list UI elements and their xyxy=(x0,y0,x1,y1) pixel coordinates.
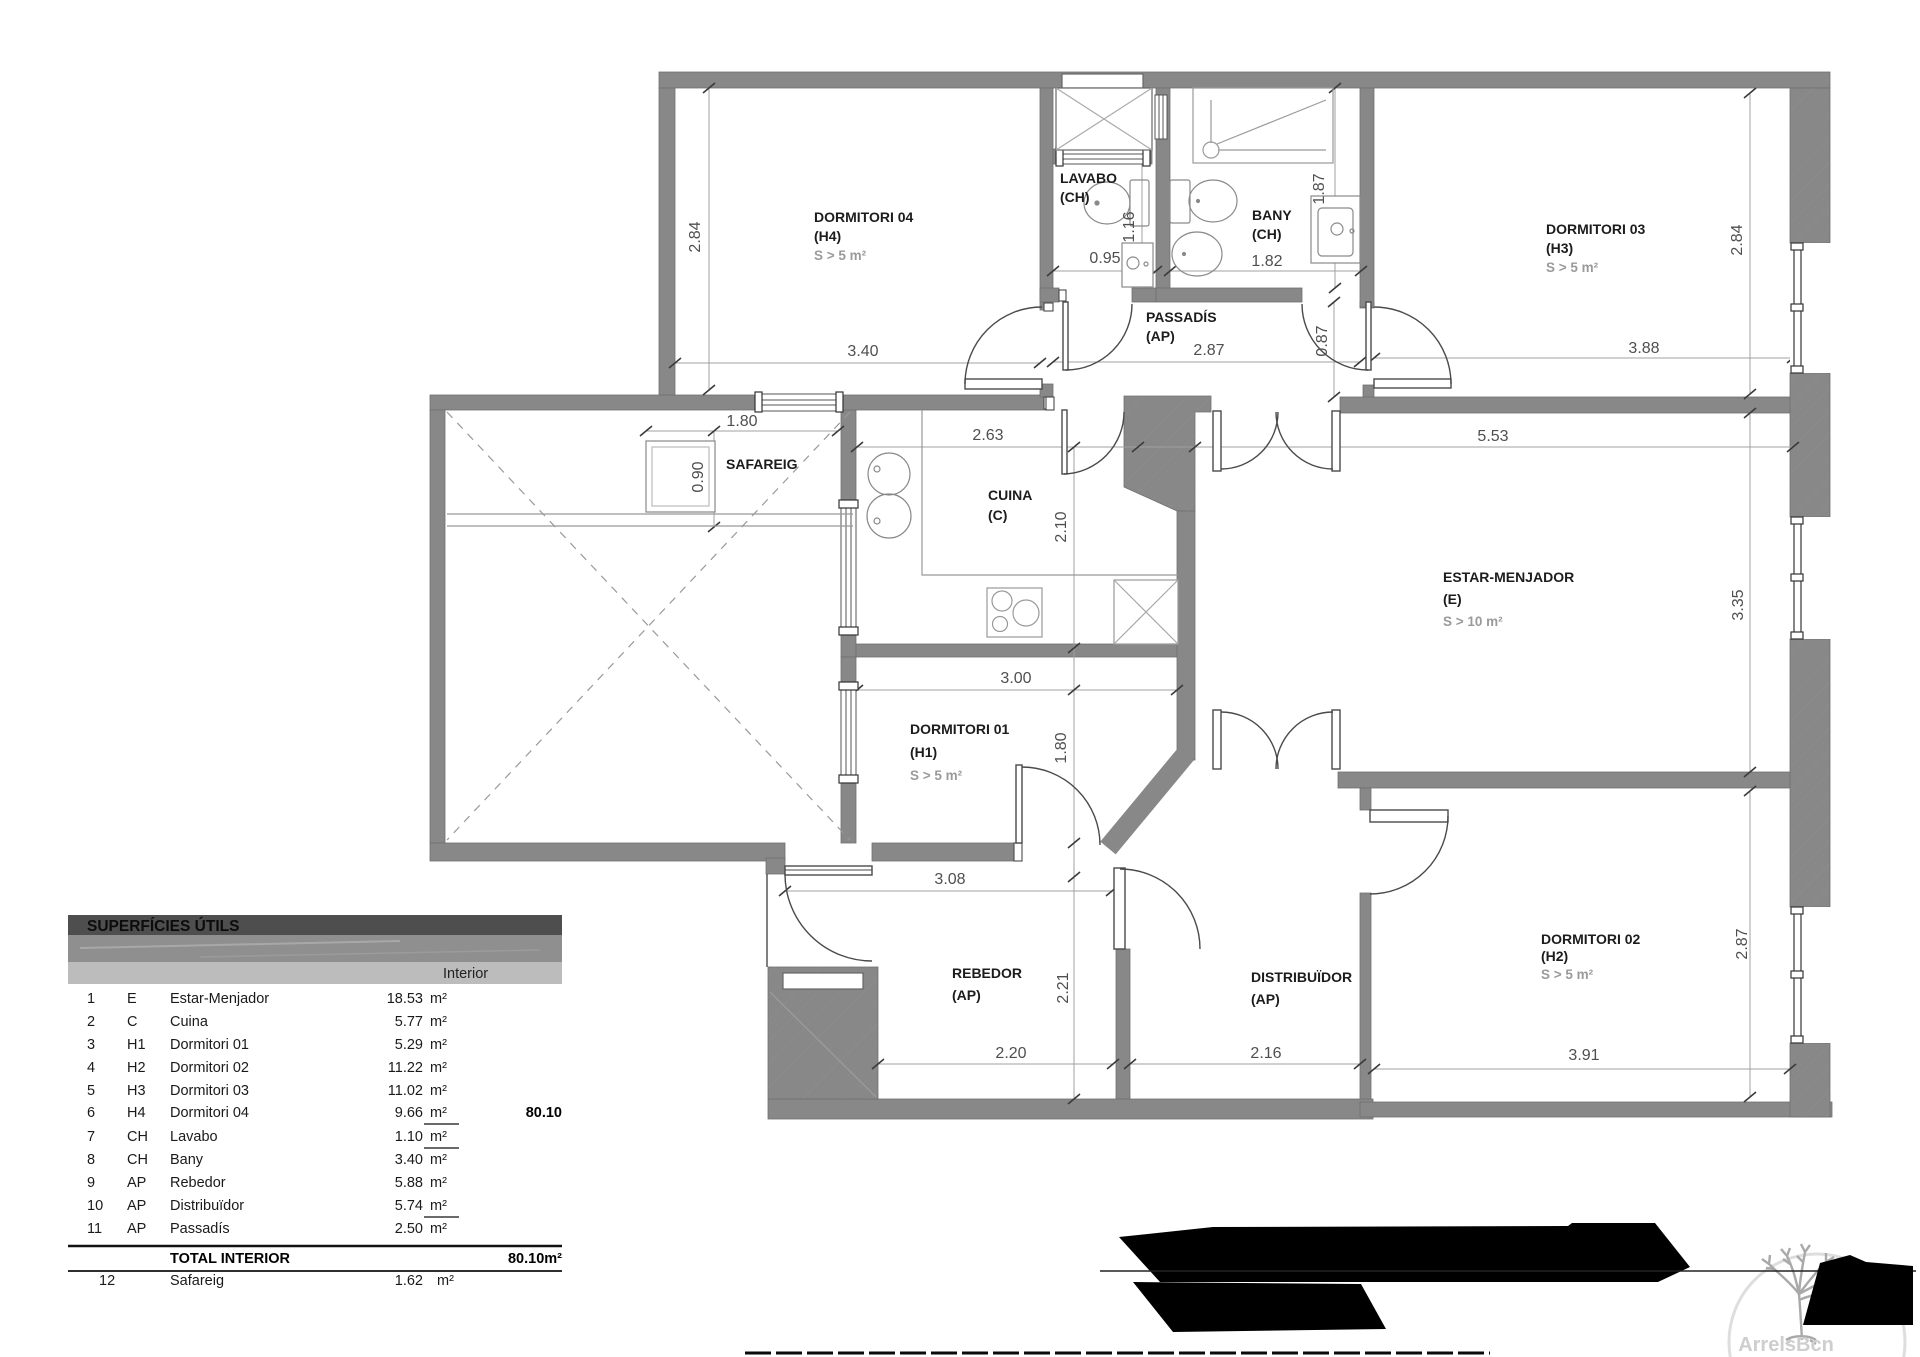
svg-text:Bany: Bany xyxy=(170,1152,204,1168)
svg-text:H2: H2 xyxy=(127,1060,146,1076)
svg-text:0.95: 0.95 xyxy=(1089,250,1120,267)
svg-text:1.87: 1.87 xyxy=(1311,173,1328,204)
svg-text:5.29: 5.29 xyxy=(395,1037,423,1053)
svg-text:(H4): (H4) xyxy=(814,228,841,244)
svg-text:Distribuïdor: Distribuïdor xyxy=(170,1198,244,1214)
svg-text:E: E xyxy=(127,991,137,1007)
svg-text:AP: AP xyxy=(127,1221,146,1237)
svg-text:9.66: 9.66 xyxy=(395,1105,423,1121)
svg-text:1: 1 xyxy=(87,991,95,1007)
svg-text:Dormitori 02: Dormitori 02 xyxy=(170,1060,249,1076)
svg-text:Passadís: Passadís xyxy=(170,1221,230,1237)
svg-text:DISTRIBUÏDOR: DISTRIBUÏDOR xyxy=(1251,969,1352,985)
svg-text:3.08: 3.08 xyxy=(934,871,965,888)
svg-text:(H1): (H1) xyxy=(910,744,937,760)
svg-text:3.35: 3.35 xyxy=(1730,589,1747,620)
svg-text:m²: m² xyxy=(430,1152,447,1168)
svg-text:11.22: 11.22 xyxy=(388,1060,423,1076)
svg-text:SUPERFÍCIES ÚTILS: SUPERFÍCIES ÚTILS xyxy=(87,917,239,935)
svg-text:m²: m² xyxy=(430,1175,447,1191)
svg-text:REBEDOR: REBEDOR xyxy=(952,965,1022,981)
svg-text:ArrelsBcn: ArrelsBcn xyxy=(1738,1334,1834,1356)
svg-text:5.88: 5.88 xyxy=(395,1175,423,1191)
svg-text:(AP): (AP) xyxy=(1251,991,1280,1007)
svg-text:2.21: 2.21 xyxy=(1055,972,1072,1003)
svg-text:H4: H4 xyxy=(127,1105,146,1121)
svg-text:Estar-Menjador: Estar-Menjador xyxy=(170,991,269,1007)
svg-text:BANY: BANY xyxy=(1252,207,1292,223)
svg-text:2.10: 2.10 xyxy=(1053,511,1070,542)
svg-text:m²: m² xyxy=(430,991,447,1007)
svg-text:1.62: 1.62 xyxy=(395,1273,423,1289)
svg-text:H1: H1 xyxy=(127,1037,146,1053)
svg-text:6: 6 xyxy=(87,1105,95,1121)
svg-text:SAFAREIG: SAFAREIG xyxy=(726,456,798,472)
svg-text:12: 12 xyxy=(99,1273,115,1289)
svg-text:Cuina: Cuina xyxy=(170,1014,209,1030)
svg-text:Interior: Interior xyxy=(443,966,488,982)
svg-text:(AP): (AP) xyxy=(952,987,981,1003)
svg-text:0.87: 0.87 xyxy=(1314,325,1331,356)
svg-text:Dormitori 01: Dormitori 01 xyxy=(170,1037,249,1053)
svg-text:4: 4 xyxy=(87,1060,95,1076)
svg-text:2.63: 2.63 xyxy=(972,427,1003,444)
svg-text:2.50: 2.50 xyxy=(395,1221,423,1237)
svg-text:m²: m² xyxy=(430,1129,447,1145)
svg-text:m²: m² xyxy=(430,1083,447,1099)
svg-text:80.10m²: 80.10m² xyxy=(508,1251,562,1267)
svg-text:3: 3 xyxy=(87,1037,95,1053)
svg-text:1.80: 1.80 xyxy=(1053,732,1070,763)
svg-text:1.82: 1.82 xyxy=(1251,253,1282,270)
svg-text:2.87: 2.87 xyxy=(1193,342,1224,359)
svg-text:(H3): (H3) xyxy=(1546,240,1573,256)
svg-text:Dormitori 04: Dormitori 04 xyxy=(170,1105,249,1121)
svg-text:3.00: 3.00 xyxy=(1000,670,1031,687)
svg-text:Rebedor: Rebedor xyxy=(170,1175,226,1191)
svg-text:5.74: 5.74 xyxy=(395,1198,423,1214)
svg-text:m²: m² xyxy=(430,1221,447,1237)
svg-text:CH: CH xyxy=(127,1129,148,1145)
svg-text:m²: m² xyxy=(430,1105,447,1121)
svg-text:DORMITORI 02: DORMITORI 02 xyxy=(1541,931,1641,947)
svg-text:(CH): (CH) xyxy=(1252,226,1282,242)
svg-text:3.40: 3.40 xyxy=(847,343,878,360)
svg-text:PASSADÍS: PASSADÍS xyxy=(1146,309,1217,325)
svg-text:(AP): (AP) xyxy=(1146,328,1175,344)
svg-text:(C): (C) xyxy=(988,507,1007,523)
svg-text:2: 2 xyxy=(87,1014,95,1030)
svg-text:m²: m² xyxy=(430,1198,447,1214)
svg-text:m²: m² xyxy=(437,1273,454,1289)
svg-text:2.84: 2.84 xyxy=(687,221,704,252)
svg-text:ESTAR-MENJADOR: ESTAR-MENJADOR xyxy=(1443,569,1574,585)
svg-text:10: 10 xyxy=(87,1198,103,1214)
svg-text:9: 9 xyxy=(87,1175,95,1191)
svg-text:Safareig: Safareig xyxy=(170,1273,224,1289)
svg-text:2.87: 2.87 xyxy=(1734,928,1751,959)
svg-text:S > 5 m²: S > 5 m² xyxy=(1546,260,1599,275)
svg-text:CUINA: CUINA xyxy=(988,487,1032,503)
svg-text:11.02: 11.02 xyxy=(388,1083,423,1099)
svg-text:S > 5 m²: S > 5 m² xyxy=(910,768,963,783)
svg-text:5.53: 5.53 xyxy=(1477,428,1508,445)
svg-text:LAVABO: LAVABO xyxy=(1060,170,1117,186)
svg-text:S > 10 m²: S > 10 m² xyxy=(1443,614,1503,629)
svg-text:AP: AP xyxy=(127,1175,146,1191)
svg-text:C: C xyxy=(127,1014,137,1030)
svg-text:CH: CH xyxy=(127,1152,148,1168)
svg-text:8: 8 xyxy=(87,1152,95,1168)
svg-text:Dormitori 03: Dormitori 03 xyxy=(170,1083,249,1099)
svg-text:H3: H3 xyxy=(127,1083,146,1099)
svg-text:m²: m² xyxy=(430,1014,447,1030)
svg-text:(E): (E) xyxy=(1443,591,1462,607)
svg-text:1.16: 1.16 xyxy=(1121,211,1138,242)
svg-text:S > 5 m²: S > 5 m² xyxy=(814,248,867,263)
svg-text:AP: AP xyxy=(127,1198,146,1214)
svg-text:Lavabo: Lavabo xyxy=(170,1129,218,1145)
svg-text:(H2): (H2) xyxy=(1541,948,1568,964)
svg-text:(CH): (CH) xyxy=(1060,189,1090,205)
svg-text:0.90: 0.90 xyxy=(690,461,707,492)
svg-text:TOTAL INTERIOR: TOTAL INTERIOR xyxy=(170,1251,291,1267)
svg-text:2.16: 2.16 xyxy=(1250,1045,1281,1062)
svg-text:3.40: 3.40 xyxy=(395,1152,423,1168)
svg-text:DORMITORI 01: DORMITORI 01 xyxy=(910,721,1010,737)
svg-text:m²: m² xyxy=(430,1060,447,1076)
svg-text:DORMITORI 03: DORMITORI 03 xyxy=(1546,221,1646,237)
svg-text:80.10: 80.10 xyxy=(526,1105,562,1121)
svg-text:2.84: 2.84 xyxy=(1729,224,1746,255)
svg-text:2.20: 2.20 xyxy=(995,1045,1026,1062)
svg-text:S > 5 m²: S > 5 m² xyxy=(1541,967,1594,982)
svg-text:5.77: 5.77 xyxy=(395,1014,423,1030)
svg-text:DORMITORI 04: DORMITORI 04 xyxy=(814,209,914,225)
svg-text:3.88: 3.88 xyxy=(1628,340,1659,357)
svg-text:m²: m² xyxy=(430,1037,447,1053)
svg-text:5: 5 xyxy=(87,1083,95,1099)
svg-text:3.91: 3.91 xyxy=(1568,1047,1599,1064)
svg-text:7: 7 xyxy=(87,1129,95,1145)
svg-text:1.80: 1.80 xyxy=(726,413,757,430)
svg-text:18.53: 18.53 xyxy=(387,991,423,1007)
svg-text:1.10: 1.10 xyxy=(395,1129,423,1145)
svg-text:11: 11 xyxy=(87,1221,102,1237)
